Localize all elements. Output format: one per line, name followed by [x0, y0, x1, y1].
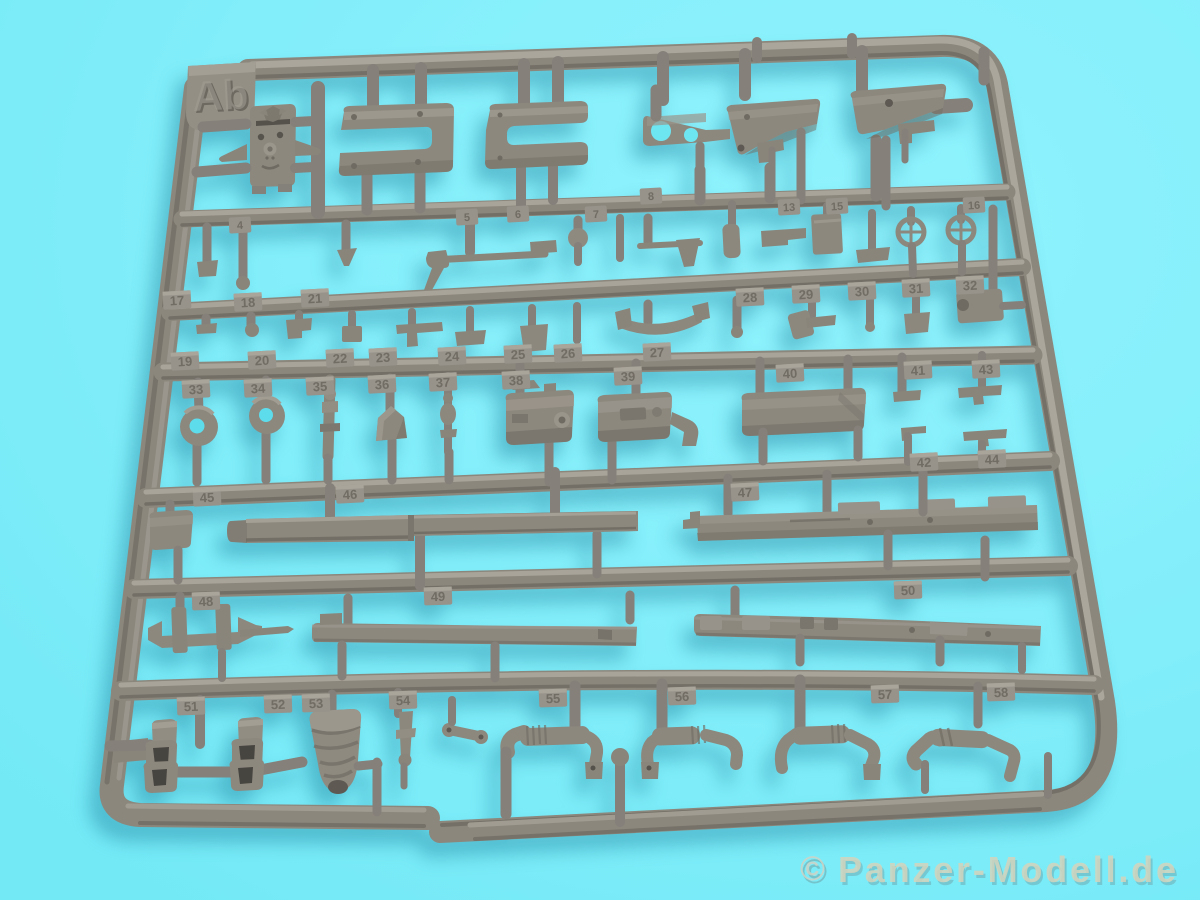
svg-text:36: 36 [374, 377, 389, 393]
svg-text:17: 17 [169, 293, 184, 309]
svg-text:53: 53 [309, 696, 324, 711]
svg-text:41: 41 [910, 363, 925, 379]
svg-text:7: 7 [593, 209, 600, 221]
svg-text:21: 21 [307, 291, 322, 307]
svg-text:56: 56 [675, 689, 690, 704]
svg-text:50: 50 [901, 583, 916, 598]
svg-text:8: 8 [648, 191, 655, 203]
svg-text:37: 37 [435, 375, 450, 391]
svg-text:Ab: Ab [191, 70, 249, 120]
svg-text:20: 20 [254, 353, 269, 369]
svg-text:38: 38 [508, 373, 523, 389]
svg-text:©: © [800, 850, 825, 888]
svg-text:39: 39 [620, 369, 635, 385]
svg-text:34: 34 [250, 381, 266, 397]
svg-text:58: 58 [994, 685, 1009, 700]
svg-text:32: 32 [962, 278, 977, 294]
svg-text:27: 27 [649, 345, 664, 361]
svg-text:23: 23 [375, 350, 390, 366]
svg-text:5: 5 [464, 212, 471, 224]
svg-text:57: 57 [878, 687, 893, 702]
svg-text:35: 35 [312, 379, 327, 395]
svg-text:42: 42 [916, 455, 931, 471]
svg-text:28: 28 [742, 290, 757, 306]
svg-text:25: 25 [510, 347, 525, 363]
svg-text:48: 48 [199, 594, 214, 609]
svg-text:26: 26 [560, 346, 575, 362]
svg-text:43: 43 [978, 362, 993, 378]
svg-text:18: 18 [240, 295, 255, 311]
svg-text:Panzer-Modell.de: Panzer-Modell.de [838, 849, 1176, 890]
svg-text:45: 45 [199, 490, 214, 506]
svg-text:16: 16 [968, 200, 981, 213]
svg-text:24: 24 [444, 349, 460, 365]
svg-text:40: 40 [782, 366, 797, 382]
svg-text:15: 15 [831, 201, 844, 214]
svg-text:30: 30 [854, 284, 869, 300]
svg-text:6: 6 [515, 209, 522, 221]
svg-text:54: 54 [396, 693, 412, 709]
svg-text:33: 33 [188, 382, 203, 398]
svg-text:22: 22 [332, 351, 347, 367]
svg-text:49: 49 [431, 589, 446, 604]
svg-text:31: 31 [908, 281, 923, 297]
svg-text:55: 55 [546, 691, 561, 706]
svg-text:13: 13 [783, 202, 796, 215]
svg-text:51: 51 [184, 699, 199, 714]
svg-text:29: 29 [798, 287, 813, 303]
svg-text:19: 19 [177, 354, 192, 370]
svg-text:46: 46 [342, 487, 357, 503]
svg-text:47: 47 [737, 485, 752, 501]
svg-text:44: 44 [984, 452, 1000, 468]
svg-text:52: 52 [271, 697, 286, 712]
